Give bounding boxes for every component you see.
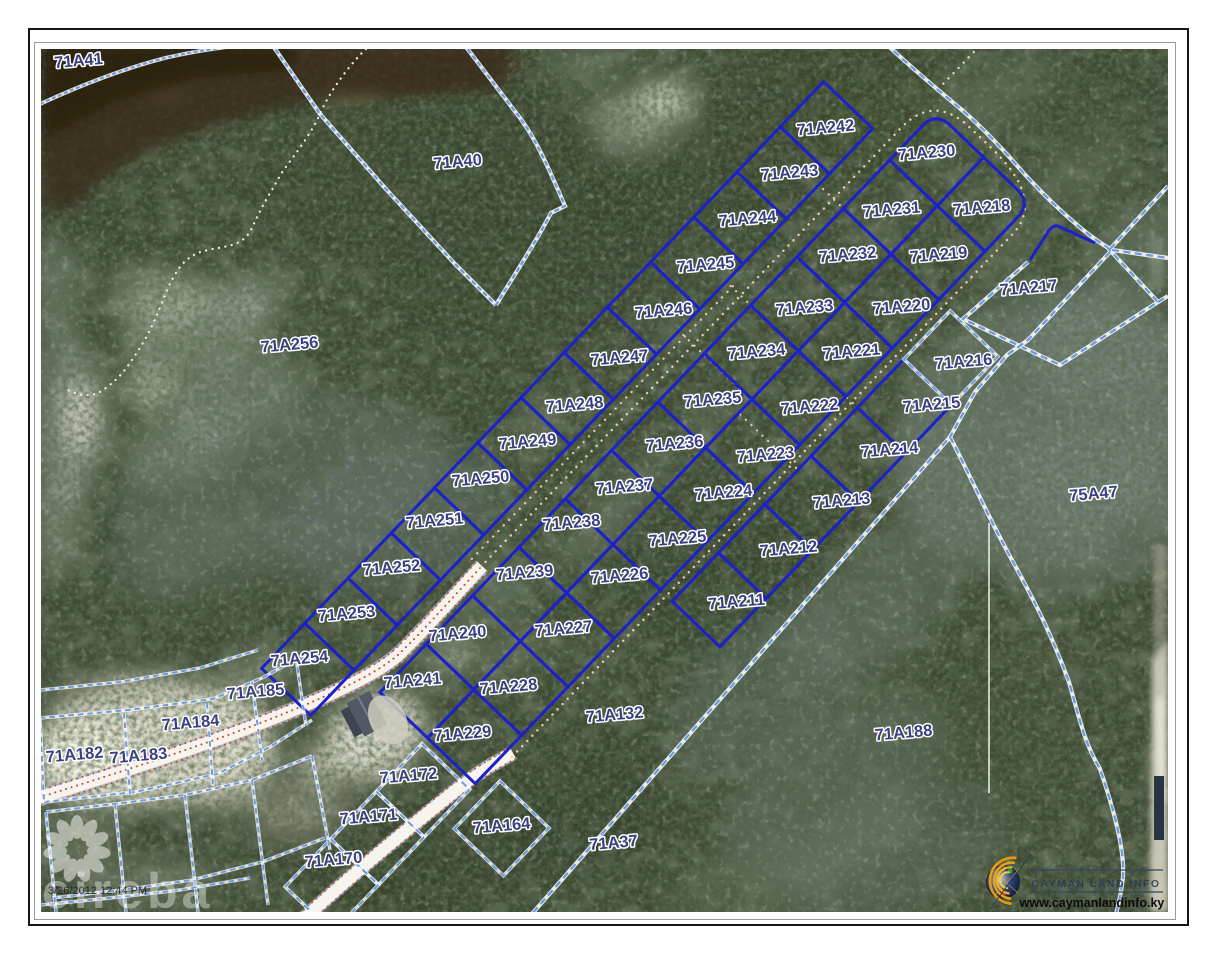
svg-text:CAYMAN LAND INFO: CAYMAN LAND INFO [1031,878,1160,890]
svg-text:www.caymanlandinfo.ky: www.caymanlandinfo.ky [1019,896,1165,910]
svg-text:3/26/2012 12:44 PM: 3/26/2012 12:44 PM [48,885,147,897]
